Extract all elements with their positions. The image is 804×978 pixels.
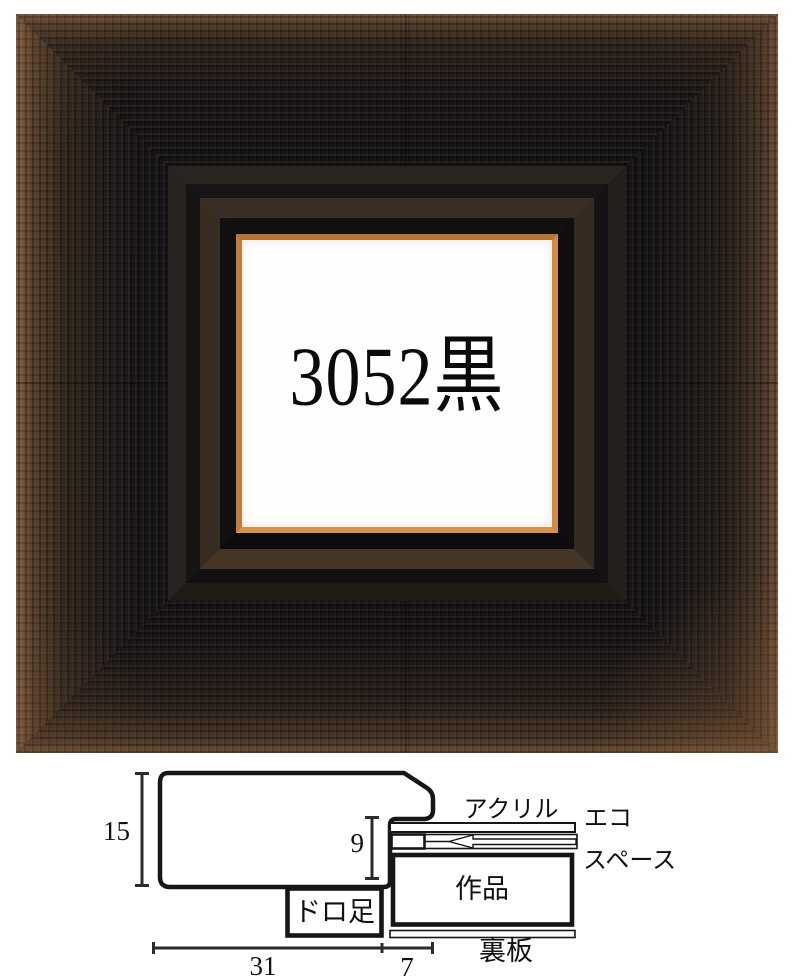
frame-photo: 3052黒	[16, 14, 778, 753]
acrylic-sheet	[390, 823, 575, 832]
frame-model-label: 3052黒	[290, 309, 505, 430]
dimension-15: 15	[103, 773, 149, 887]
space-label: スペース	[583, 848, 676, 874]
frame-opening: 3052黒	[242, 240, 552, 527]
dim-7-label: 7	[400, 952, 414, 978]
frame-inner-step-3: 3052黒	[200, 198, 594, 569]
cross-section-diagram: 15 9 アクリル エコ スペース 作品	[0, 755, 804, 978]
frame-seam-top	[405, 14, 407, 186]
dimension-31-7: 31 7	[153, 942, 433, 978]
frame-gold-liner: 3052黒	[236, 234, 558, 533]
dim-9-label: 9	[351, 828, 365, 858]
eco-space-band	[390, 835, 577, 849]
frame-seam-right	[606, 382, 778, 384]
profile-diagram-svg: 15 9 アクリル エコ スペース 作品	[0, 755, 804, 978]
acrylic-label: アクリル	[464, 797, 559, 823]
frame-inner-step-2: 3052黒	[186, 184, 608, 583]
eco-label: エコ	[584, 806, 632, 832]
back-board-label: 裏板	[479, 936, 533, 966]
frame-seam-left	[16, 382, 188, 384]
artwork-label: 作品	[455, 874, 509, 904]
frame-seam-bottom	[405, 581, 407, 753]
frame-inner-step-4: 3052黒	[220, 218, 574, 549]
page: 3052黒 15	[0, 0, 804, 978]
frame-inner-step-1: 3052黒	[168, 166, 626, 601]
dim-31-label: 31	[250, 951, 277, 978]
drop-foot-label: ドロ足	[294, 897, 375, 927]
dim-15-label: 15	[103, 816, 130, 846]
eco-spacer-block	[392, 835, 425, 849]
